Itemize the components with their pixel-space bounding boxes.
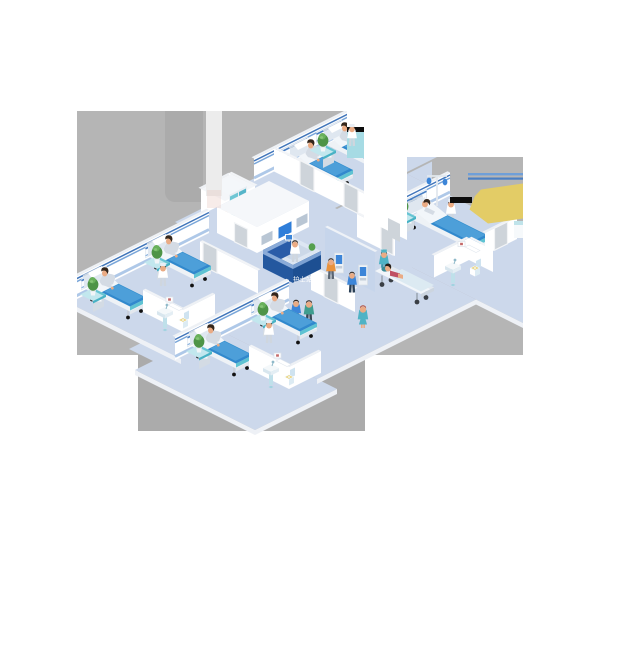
svg-text:护士站: 护士站 — [293, 275, 313, 284]
